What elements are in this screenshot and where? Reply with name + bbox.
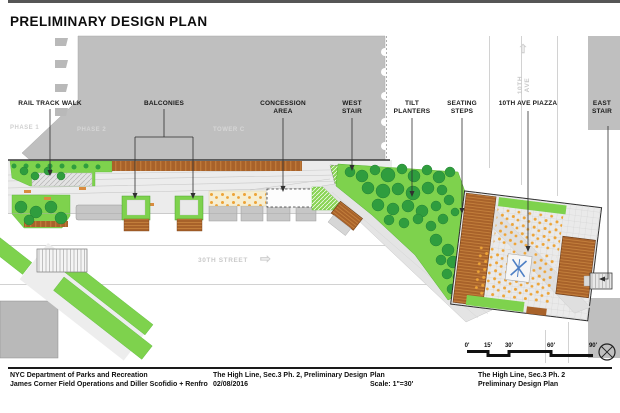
scale-tick-15: 15' — [484, 343, 492, 349]
balcony-1 — [122, 196, 150, 231]
scale-bar — [467, 352, 593, 356]
phase2-label: PHASE 2 — [77, 127, 106, 133]
callout-tilt-planters: TILT PLANTERS — [394, 100, 431, 116]
footer-agency: NYC Department of Parks and Recreation J… — [10, 371, 208, 389]
piazza — [451, 191, 603, 321]
north-deck — [112, 161, 302, 171]
footer-graphics — [8, 344, 615, 369]
footer-agency-line1: NYC Department of Parks and Recreation — [10, 371, 208, 380]
concession-structure — [267, 189, 315, 207]
plan-graphics — [0, 0, 620, 413]
ave-10th-label: 10TH AVE — [517, 68, 531, 102]
callout-rail-track-walk: RAIL TRACK WALK — [18, 100, 82, 108]
footer-project-line1: The High Line, Sec.3 Ph. 2, Preliminary … — [213, 371, 367, 380]
tower-c-label: TOWER C — [213, 127, 245, 133]
scale-tick-60: 60' — [547, 343, 555, 349]
piazza-feature — [505, 254, 532, 283]
scale-tick-0: 0' — [465, 343, 470, 349]
scale-tick-30: 30' — [505, 343, 513, 349]
scale-tick-90: 90' — [589, 343, 597, 349]
phase1-label: PHASE 1 — [10, 125, 39, 131]
footer-drawing-type: Plan — [370, 371, 413, 380]
seating-steps-east — [556, 236, 596, 298]
footer-sheet-title: The High Line, Sec.3 Ph. 2 Preliminary D… — [478, 371, 565, 389]
footer-drawing-scale: Scale: 1"=30' — [370, 380, 413, 389]
passage-slab — [76, 205, 123, 220]
footer-rule — [8, 367, 612, 369]
callout-concession-area: CONCESSION AREA — [260, 100, 306, 116]
street-30th-arrow-icon: ⇨ — [260, 251, 271, 267]
balcony-2 — [175, 196, 203, 231]
callout-balconies: BALCONIES — [144, 100, 184, 108]
callout-west-stair: WEST STAIR — [342, 100, 362, 116]
callout-east-stair: EAST STAIR — [592, 100, 612, 116]
footer-project: The High Line, Sec.3 Ph. 2, Preliminary … — [213, 371, 367, 389]
ave-10th-arrow-icon: ⇧ — [518, 42, 528, 56]
footer-sheet-line2: Preliminary Design Plan — [478, 380, 565, 389]
street-30th-label: 30TH STREET — [198, 257, 248, 264]
sheet-top-border — [8, 0, 620, 3]
footer-sheet-line1: The High Line, Sec.3 Ph. 2 — [478, 371, 565, 380]
footer-agency-line2: James Corner Field Operations and Diller… — [10, 380, 208, 389]
plan-sheet: PRELIMINARY DESIGN PLAN RAIL TRACK WALK … — [0, 0, 620, 413]
footer-project-date: 02/08/2016 — [213, 380, 367, 389]
callout-seating-steps: SEATING STEPS — [447, 100, 477, 116]
footer-drawing: Plan Scale: 1"=30' — [370, 371, 413, 389]
building-southwest — [0, 301, 58, 358]
page-title: PRELIMINARY DESIGN PLAN — [10, 14, 207, 29]
